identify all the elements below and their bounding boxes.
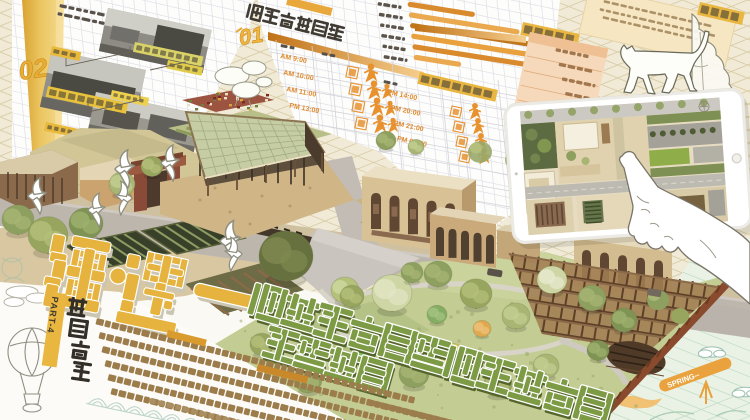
svg-text:02: 02 <box>17 52 50 86</box>
